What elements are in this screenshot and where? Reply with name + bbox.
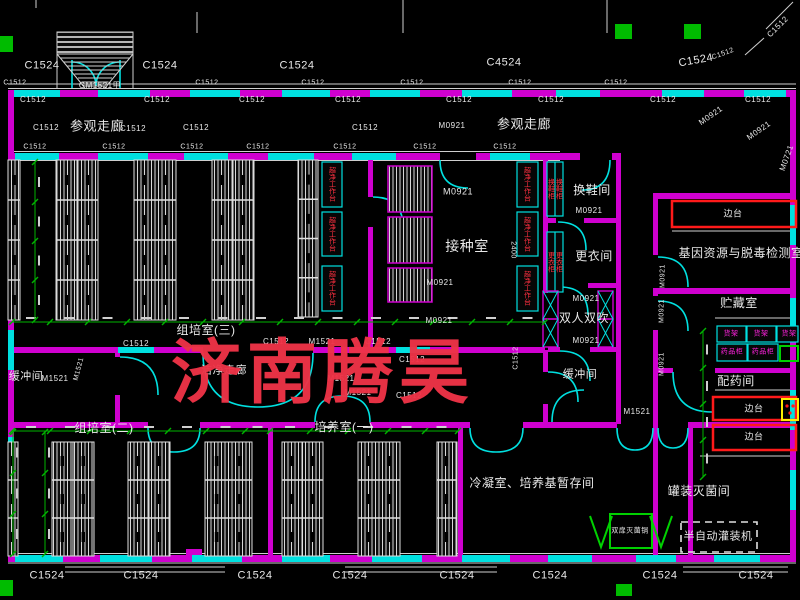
door-code-label: M0921 bbox=[660, 264, 667, 288]
door-code-label: M0921 bbox=[576, 207, 603, 215]
equipment-label: 货架 bbox=[724, 331, 739, 338]
door-code-label: M0921 bbox=[659, 299, 666, 323]
window-code-label: C1512 bbox=[538, 96, 564, 104]
watermark-text: 济南腾昊 bbox=[171, 317, 475, 418]
window-code-label: C1512 bbox=[352, 124, 378, 132]
equipment-label: 换鞋柜 bbox=[556, 179, 563, 200]
window-code-label: C1512 bbox=[335, 96, 361, 104]
equipment-label: 换鞋柜 bbox=[548, 179, 555, 200]
window-code-label: C1512 bbox=[650, 96, 676, 104]
equipment-label: 边台 bbox=[744, 405, 763, 414]
window-code-label: C1524 bbox=[333, 571, 368, 582]
door-code-label: M0921 bbox=[443, 188, 473, 197]
window-code-label: C1524 bbox=[643, 571, 678, 582]
door-code-label: M1521 bbox=[42, 375, 69, 383]
equipment-label: 超净工作台 bbox=[524, 217, 531, 252]
equipment-label: 货架 bbox=[754, 331, 769, 338]
window-code-label: C1524 bbox=[143, 61, 178, 72]
door-code-label: M0921 bbox=[698, 105, 725, 127]
window-code-label: C1512 bbox=[3, 80, 26, 87]
door-code-label: M0721 bbox=[779, 144, 796, 172]
equipment-label: 药品柜 bbox=[721, 349, 744, 356]
door-code-label: M0921 bbox=[746, 120, 773, 142]
equipment-label: 边台 bbox=[744, 433, 763, 442]
text-labels-layer: C1524C1524C1524C4524C1524C1512C1512GM152… bbox=[0, 0, 800, 600]
window-code-label: C1512 bbox=[508, 80, 531, 87]
window-code-label: C1512 bbox=[766, 15, 790, 39]
window-code-label: C1512 bbox=[493, 144, 516, 151]
window-code-label: C1512 bbox=[301, 80, 324, 87]
door-code-label: GM1521甲 bbox=[79, 82, 121, 90]
window-code-label: C1512 bbox=[604, 80, 627, 87]
window-code-label: C1524 bbox=[678, 53, 714, 70]
window-code-label: C1512 bbox=[711, 47, 735, 61]
room-label: 配药间 bbox=[717, 375, 755, 387]
room-label: 参观走廊 bbox=[70, 120, 124, 133]
room-label: 培养室(一) bbox=[315, 421, 374, 433]
cad-floor-plan: C1524C1524C1524C4524C1524C1512C1512GM152… bbox=[0, 0, 800, 600]
window-code-label: C1524 bbox=[533, 571, 568, 582]
window-code-label: C1512 bbox=[183, 124, 209, 132]
room-label: 缓冲间 bbox=[9, 372, 44, 383]
dimension-label: 2400 bbox=[510, 241, 517, 259]
room-label: 换鞋间 bbox=[573, 184, 611, 196]
door-code-label: M1521 bbox=[624, 408, 651, 416]
equipment-label: 货架 bbox=[782, 331, 797, 338]
window-code-label: C1524 bbox=[238, 571, 273, 582]
equipment-label: 超净工作台 bbox=[524, 167, 531, 202]
room-label: 组培室(二) bbox=[75, 422, 134, 434]
room-label: 冷凝室、培养基暂存间 bbox=[469, 477, 594, 489]
window-code-label: C1524 bbox=[124, 571, 159, 582]
room-label: 罐装灭菌间 bbox=[668, 485, 731, 497]
equipment-label: 更衣柜 bbox=[556, 252, 563, 273]
window-code-label: C4524 bbox=[487, 58, 522, 69]
window-code-label: C1524 bbox=[739, 571, 774, 582]
door-code-label: M1521 bbox=[73, 357, 86, 382]
window-code-label: C1512 bbox=[20, 96, 46, 104]
room-label: 更衣间 bbox=[575, 250, 613, 262]
equipment-label: 超净工作台 bbox=[524, 271, 531, 306]
room-label: 接种室 bbox=[445, 239, 489, 253]
equipment-label: 更衣柜 bbox=[548, 252, 555, 273]
window-code-label: C1512 bbox=[446, 96, 472, 104]
window-code-label: C1512 bbox=[239, 96, 265, 104]
door-code-label: M0921 bbox=[439, 122, 466, 130]
window-code-label: C1512 bbox=[400, 80, 423, 87]
window-code-label: C1512 bbox=[195, 80, 218, 87]
equipment-label: 超净工作台 bbox=[329, 271, 336, 306]
window-code-label: C1524 bbox=[30, 571, 65, 582]
door-code-label: M0921 bbox=[573, 295, 600, 303]
door-code-label: M0921 bbox=[659, 352, 666, 376]
room-label: 基因资源与脱毒检测室 bbox=[678, 247, 800, 259]
room-label: 贮藏室 bbox=[720, 297, 758, 309]
window-code-label: C1512 bbox=[180, 144, 203, 151]
equipment-label: 超净工作台 bbox=[329, 217, 336, 252]
window-code-label: C1524 bbox=[280, 61, 315, 72]
window-code-label: C1512 bbox=[246, 144, 269, 151]
window-code-label: C1524 bbox=[440, 571, 475, 582]
window-code-label: C1524 bbox=[25, 61, 60, 72]
door-code-label: M0921 bbox=[573, 337, 600, 345]
window-code-label: C1512 bbox=[513, 346, 520, 369]
equipment-label: 药品柜 bbox=[752, 349, 775, 356]
window-code-label: C1512 bbox=[120, 125, 146, 133]
door-code-label: M0921 bbox=[427, 279, 454, 287]
room-label: 双人双吹 bbox=[559, 312, 609, 324]
equipment-label: 边台 bbox=[723, 210, 742, 219]
room-label: 参观走廊 bbox=[497, 118, 551, 131]
window-code-label: C1512 bbox=[23, 144, 46, 151]
window-code-label: C1512 bbox=[144, 96, 170, 104]
equipment-label: 双扉灭菌锅 bbox=[611, 528, 649, 535]
window-code-label: C1512 bbox=[102, 144, 125, 151]
window-code-label: C1512 bbox=[123, 340, 149, 348]
equipment-label: 半自动灌装机 bbox=[684, 532, 753, 543]
room-label: 缓冲间 bbox=[563, 370, 598, 381]
window-code-label: C1512 bbox=[745, 96, 771, 104]
window-code-label: C1512 bbox=[333, 144, 356, 151]
window-code-label: C1512 bbox=[33, 124, 59, 132]
window-code-label: C1512 bbox=[413, 144, 436, 151]
equipment-label: 超净工作台 bbox=[329, 167, 336, 202]
